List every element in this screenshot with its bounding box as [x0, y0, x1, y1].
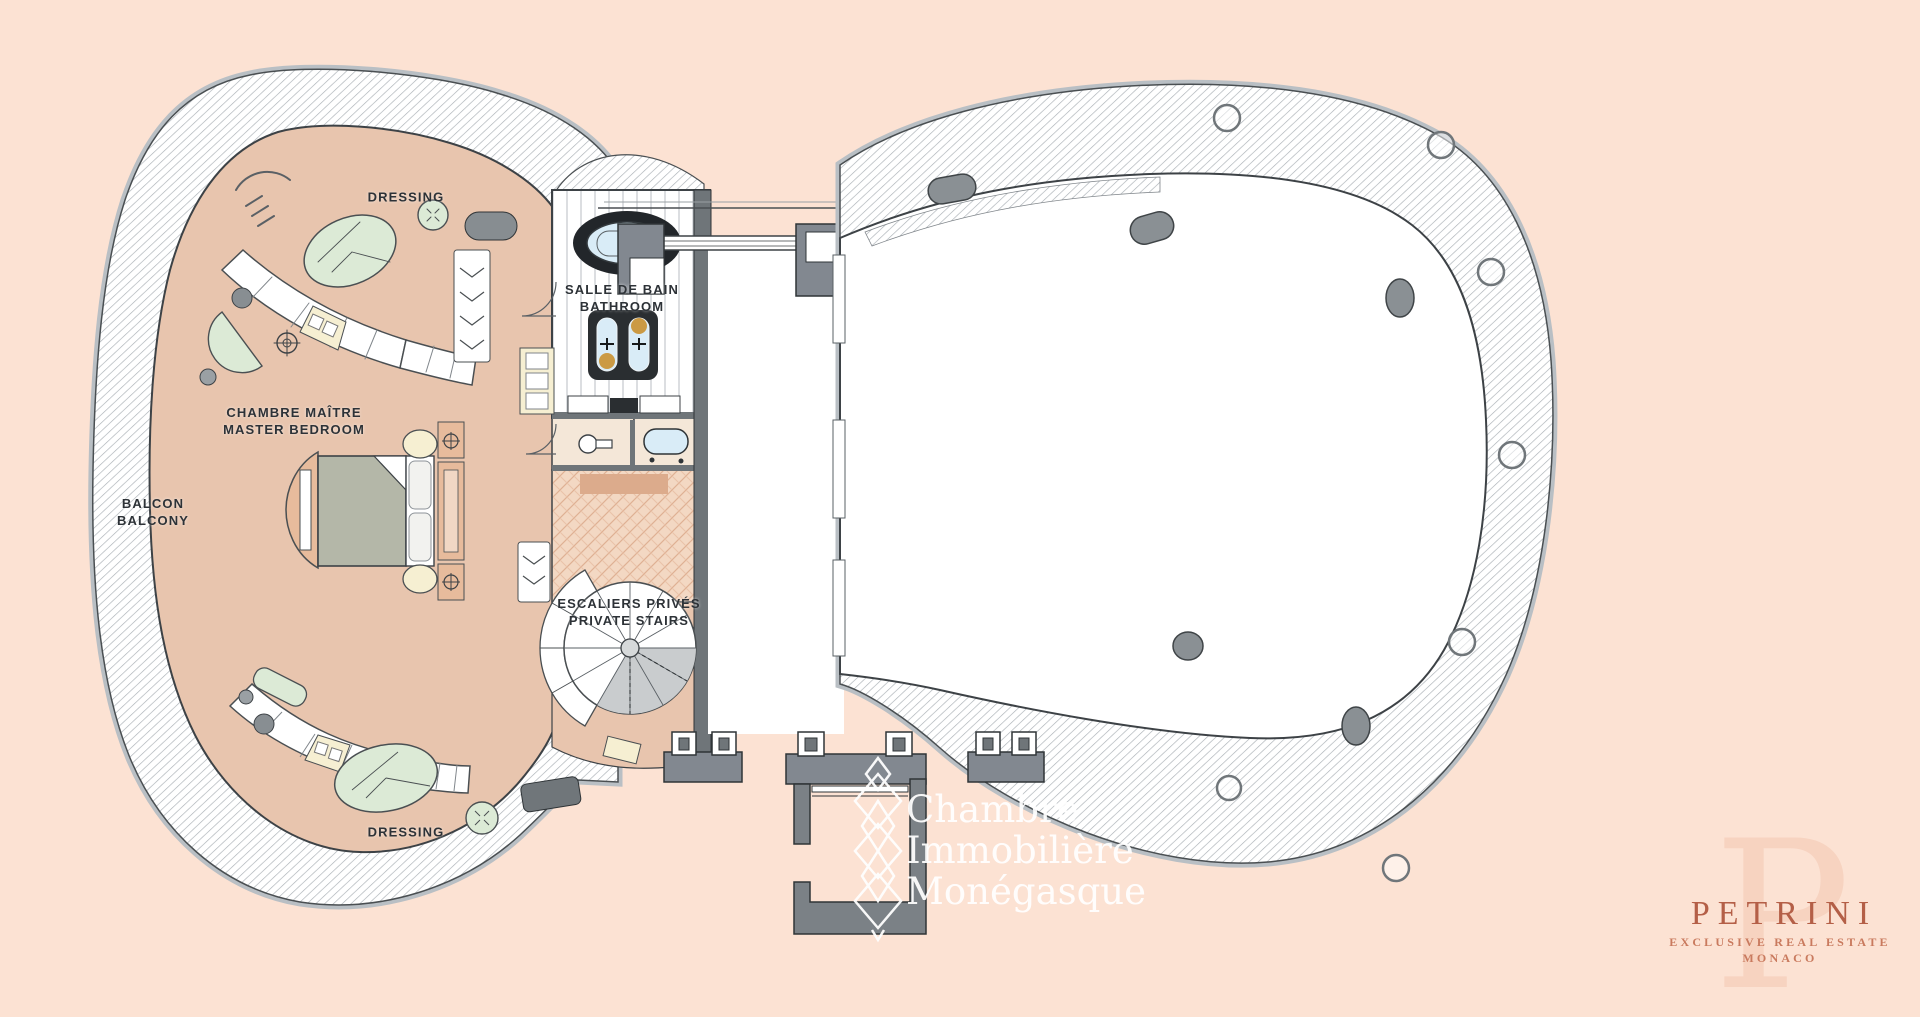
- room-label-private-stairs: ESCALIERS PRIVÉS PRIVATE STAIRS: [557, 595, 700, 629]
- dressing-top-text: DRESSING: [368, 190, 445, 205]
- window-slot: [833, 255, 845, 656]
- floor-plan-canvas: DRESSING SALLE DE BAIN BATHROOM CHAMBRE …: [0, 0, 1920, 1017]
- pier-base: [968, 752, 1044, 782]
- corridor-window-band: [640, 236, 820, 250]
- laundry-stack: [520, 348, 554, 414]
- room-label-balcony: BALCON BALCONY: [117, 495, 189, 529]
- hallway-rug: [580, 474, 668, 494]
- watermark-text: Chambre Immobilière Monégasque: [906, 789, 1146, 912]
- watermark-line-2: Immobilière: [906, 830, 1146, 871]
- room-label-dressing-bottom: DRESSING: [368, 824, 445, 841]
- room-label-master-bedroom: CHAMBRE MAÎTRE MASTER BEDROOM: [223, 404, 365, 438]
- balcony-text-en: BALCONY: [117, 512, 189, 529]
- pier-base: [664, 752, 742, 782]
- small-bathtub: [644, 429, 688, 454]
- watermark-line-1: Chambre: [906, 789, 1146, 830]
- right-wing: [833, 84, 1553, 881]
- stool: [232, 288, 252, 308]
- brand-name: PETRINI: [1655, 895, 1905, 933]
- private-stairs-text-en: PRIVATE STAIRS: [557, 612, 700, 629]
- balcony-text-fr: BALCON: [117, 495, 189, 512]
- stool: [254, 714, 274, 734]
- great-room-floor: [840, 173, 1487, 738]
- bathroom-text-fr: SALLE DE BAIN: [565, 281, 679, 298]
- pouf: [466, 802, 498, 834]
- stool: [200, 369, 216, 385]
- private-stairs-text-fr: ESCALIERS PRIVÉS: [557, 595, 700, 612]
- central-hall: [708, 250, 844, 734]
- room-label-bathroom: SALLE DE BAIN BATHROOM: [565, 281, 679, 315]
- dressing-bottom-text: DRESSING: [368, 825, 445, 840]
- brand-tagline: EXCLUSIVE REAL ESTATE MONACO: [1655, 934, 1905, 966]
- master-bedroom-text-en: MASTER BEDROOM: [223, 421, 365, 438]
- double-vanity: [588, 310, 658, 380]
- bathroom-text-en: BATHROOM: [565, 298, 679, 315]
- nightstand: [403, 430, 437, 458]
- pier-base: [786, 754, 926, 784]
- brand-logo: P PETRINI EXCLUSIVE REAL ESTATE MONACO: [1655, 815, 1905, 1005]
- nightstand: [403, 565, 437, 593]
- watermark-line-3: Monégasque: [906, 871, 1146, 912]
- bench: [465, 212, 517, 240]
- room-label-dressing-top: DRESSING: [368, 189, 445, 206]
- stool: [239, 690, 253, 704]
- master-bedroom-text-fr: CHAMBRE MAÎTRE: [223, 404, 365, 421]
